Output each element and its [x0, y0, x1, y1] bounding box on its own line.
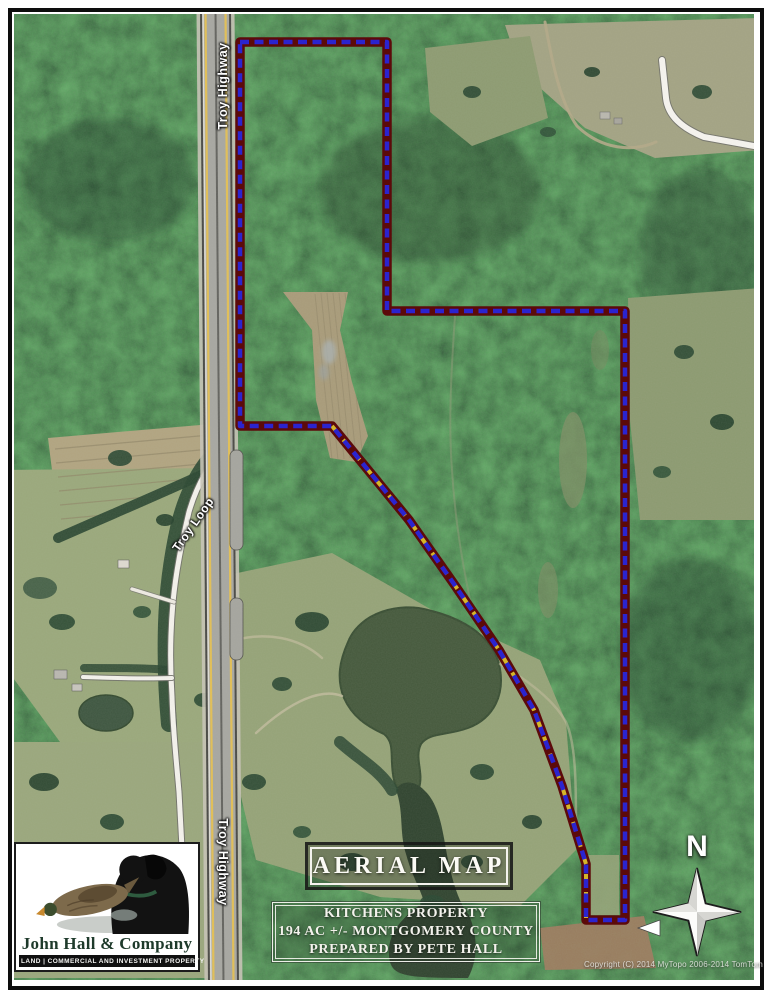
company-name: John Hall & Company: [19, 934, 195, 954]
map-title-box: AERIAL MAP: [305, 842, 513, 890]
property-prepared-by: PREPARED BY PETE HALL: [309, 941, 502, 959]
north-label: N: [649, 832, 745, 862]
aerial-map-page: { "map_overlay": { "title_box": { "label…: [0, 0, 768, 994]
imagery-copyright: Copyright (C) 2014 MyTopo 2006-2014 TomT…: [584, 960, 756, 969]
compass-rose-icon: [651, 866, 743, 958]
aerial-photo-map: [14, 14, 754, 980]
map-title-inner-border: AERIAL MAP: [310, 847, 508, 885]
company-logo-box: John Hall & Company LAND | COMMERCIAL AN…: [14, 842, 200, 972]
property-name: KITCHENS PROPERTY: [324, 905, 488, 923]
aerial-imagery: [14, 14, 754, 980]
road-label-troy-highway-bottom: Troy Highway: [214, 807, 230, 917]
property-acreage-county: 194 AC +/- MONTGOMERY COUNTY: [278, 923, 534, 941]
road-label-troy-highway-top: Troy Highway: [216, 31, 232, 141]
compass: N: [649, 832, 745, 958]
property-info-inner-border: KITCHENS PROPERTY 194 AC +/- MONTGOMERY …: [275, 905, 537, 959]
map-title: AERIAL MAP: [313, 853, 506, 880]
logo-dog-image: [19, 847, 195, 934]
company-tagline: LAND | COMMERCIAL AND INVESTMENT PROPERT…: [19, 955, 195, 967]
property-info-box: KITCHENS PROPERTY 194 AC +/- MONTGOMERY …: [272, 902, 540, 962]
dog-with-duck-icon: [19, 847, 195, 934]
